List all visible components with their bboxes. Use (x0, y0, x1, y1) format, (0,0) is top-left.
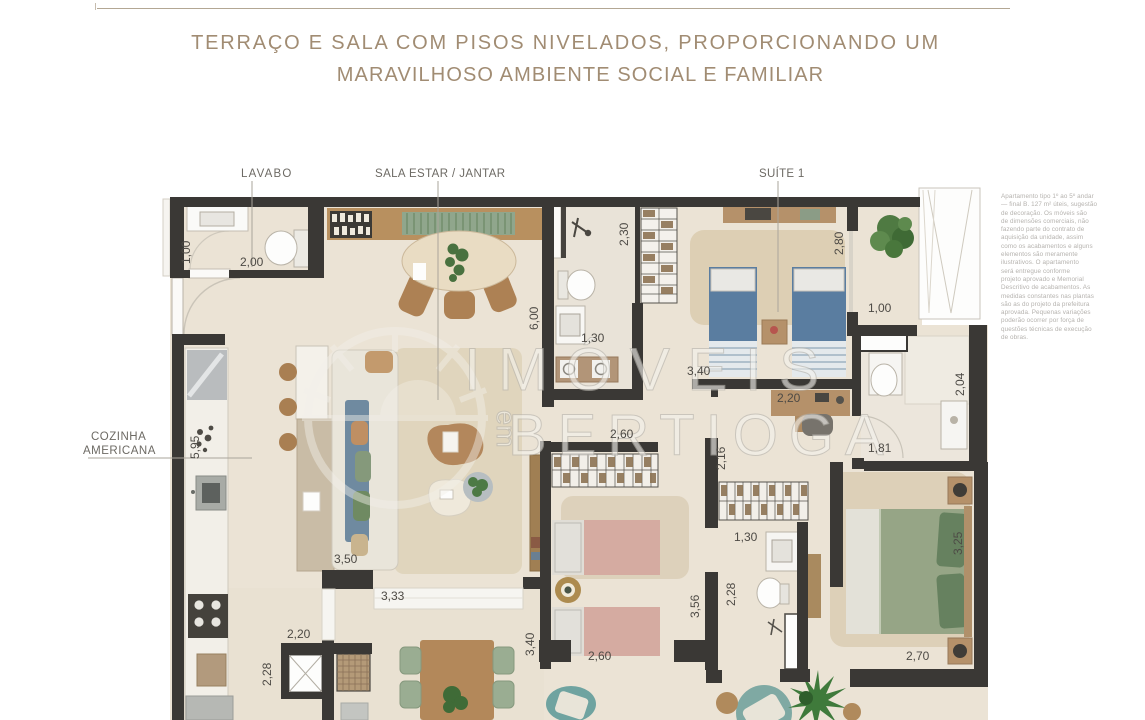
svg-text:2,60: 2,60 (588, 649, 612, 663)
svg-text:2,28: 2,28 (724, 582, 738, 606)
svg-text:2,00: 2,00 (240, 255, 264, 269)
svg-text:2,80: 2,80 (832, 231, 846, 255)
svg-text:SUÍTE 1: SUÍTE 1 (759, 167, 805, 180)
svg-text:3,25: 3,25 (951, 531, 965, 555)
svg-text:5,95: 5,95 (188, 435, 202, 459)
svg-text:2,70: 2,70 (906, 649, 930, 663)
svg-text:3,40: 3,40 (523, 632, 537, 656)
svg-text:1,30: 1,30 (734, 530, 758, 544)
svg-text:3,56: 3,56 (688, 594, 702, 618)
svg-text:3,33: 3,33 (381, 589, 405, 603)
svg-text:3,40: 3,40 (687, 364, 711, 378)
svg-text:2,20: 2,20 (777, 391, 801, 405)
svg-text:COZINHA: COZINHA (91, 431, 146, 443)
svg-text:BERTIOGA: BERTIOGA (508, 403, 895, 468)
svg-text:3,50: 3,50 (334, 552, 358, 566)
svg-text:1,00: 1,00 (868, 301, 892, 315)
svg-text:1,81: 1,81 (868, 441, 892, 455)
svg-text:AMERICANA: AMERICANA (83, 445, 156, 457)
svg-text:2,60: 2,60 (610, 427, 634, 441)
svg-text:2,30: 2,30 (617, 222, 631, 246)
svg-text:2,04: 2,04 (953, 372, 967, 396)
svg-text:2,28: 2,28 (260, 662, 274, 686)
svg-text:LAVABO: LAVABO (241, 168, 293, 180)
svg-text:6,00: 6,00 (527, 306, 541, 330)
svg-text:2,16: 2,16 (714, 446, 728, 470)
svg-text:1,00: 1,00 (179, 240, 193, 264)
svg-text:SALA ESTAR / JANTAR: SALA ESTAR / JANTAR (375, 168, 506, 180)
svg-text:1,30: 1,30 (581, 331, 605, 345)
svg-text:2,20: 2,20 (287, 627, 311, 641)
